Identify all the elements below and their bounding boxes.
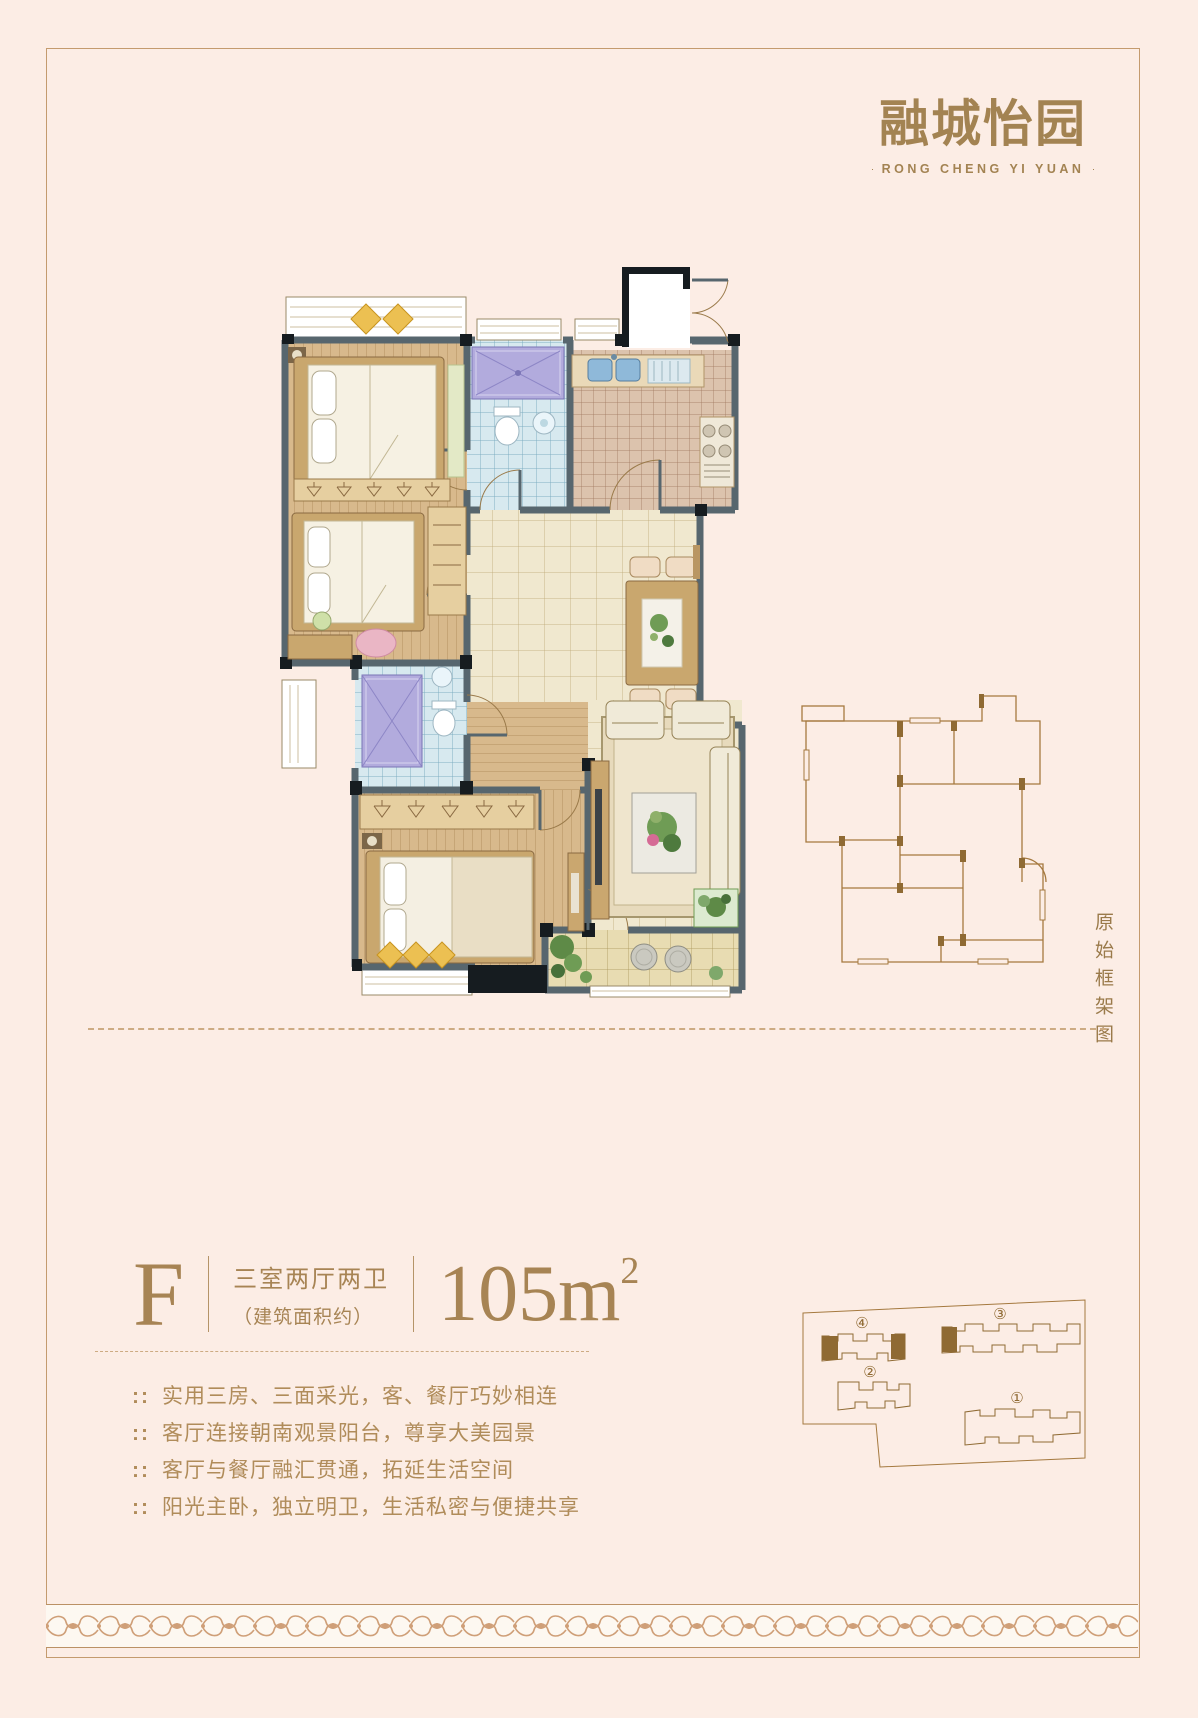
bullet-icon: :: [132, 1459, 150, 1483]
frame-diagram-caption: 原始框架图 [1089, 912, 1116, 1052]
sub-divider [95, 1351, 589, 1352]
logo-title: 融城怡园 [872, 94, 1094, 154]
stove-icon [700, 417, 734, 487]
closet-1-icon [294, 479, 450, 501]
building-3-outline [942, 1324, 1080, 1353]
logo-subtitle: RONG CHENG YI YUAN [882, 162, 1085, 176]
bed-1-icon [288, 347, 464, 487]
dresser-icon [568, 853, 584, 931]
balcony-stools-icon [631, 944, 691, 972]
planter-box-icon [694, 889, 738, 927]
highlighted-unit-block [891, 1334, 905, 1359]
feature-text: 阳光主卧，独立明卫，生活私密与便捷共享 [162, 1491, 580, 1521]
sideboard-icon [693, 545, 700, 579]
building-3-label: ③ [993, 1305, 1006, 1323]
list-item: :: 阳光主卧，独立明卫，生活私密与便捷共享 [132, 1491, 580, 1528]
building-2-outline [838, 1382, 910, 1410]
frame-outline-diagram [798, 690, 1068, 982]
wardrobe-master-icon [360, 795, 534, 829]
logo-subtitle-row: RONG CHENG YI YUAN [872, 162, 1094, 176]
list-item: :: 实用三房、三面采光，客、餐厅巧妙相连 [132, 1380, 580, 1417]
separator-line [413, 1256, 414, 1332]
wardrobe-2-icon [428, 507, 466, 615]
list-item: :: 客厅与餐厅融汇贯通，拓延生活空间 [132, 1454, 580, 1491]
unit-layout: 三室两厅两卫 （建筑面积约） [233, 1259, 389, 1329]
toilet-2-icon [432, 701, 456, 736]
logo-dash-left [872, 169, 873, 170]
kitchen-counter-icon [572, 354, 704, 387]
brochure-page: 融城怡园 RONG CHENG YI YUAN [0, 0, 1198, 1718]
building-1-label: ① [1010, 1389, 1023, 1407]
feature-text: 客厅连接朝南观景阳台，尊享大美园景 [162, 1417, 536, 1447]
list-item: :: 客厅连接朝南观景阳台，尊享大美园景 [132, 1417, 580, 1454]
shower-1-icon [472, 347, 564, 399]
ornament-pattern [46, 1605, 1138, 1647]
bullet-icon: :: [132, 1422, 150, 1446]
logo-dash-right [1093, 169, 1094, 170]
feature-list: :: 实用三房、三面采光，客、餐厅巧妙相连 :: 客厅连接朝南观景阳台，尊享大美… [132, 1380, 580, 1528]
ornament-border [46, 1604, 1138, 1648]
dining-table-icon [626, 557, 698, 709]
feature-text: 客厅与餐厅融汇贯通，拓延生活空间 [162, 1454, 514, 1484]
floor-plan [270, 255, 770, 1000]
building-2-label: ② [863, 1363, 876, 1381]
unit-area: 105m2 [438, 1254, 639, 1334]
tv-cabinet-icon [591, 761, 609, 919]
shower-2-icon [362, 675, 422, 767]
coffee-table-icon [632, 793, 696, 873]
unit-info: F 三室两厅两卫 （建筑面积约） 105m2 [133, 1248, 639, 1340]
site-plan: ④ ③ ② ① [745, 1290, 1095, 1510]
separator-line [208, 1256, 209, 1332]
building-1-outline [965, 1409, 1080, 1445]
highlighted-unit-block [822, 1336, 838, 1360]
unit-area-label: （建筑面积约） [233, 1302, 389, 1329]
bullet-icon: :: [132, 1496, 150, 1520]
bullet-icon: :: [132, 1385, 150, 1409]
unit-layout-text: 三室两厅两卫 [233, 1259, 389, 1294]
project-logo: 融城怡园 RONG CHENG YI YUAN [872, 94, 1094, 176]
unit-area-sup: 2 [620, 1252, 639, 1290]
sink-2-icon [432, 667, 452, 687]
section-divider [88, 1028, 1106, 1030]
bed-2-icon [292, 513, 424, 631]
highlighted-unit-block [942, 1327, 957, 1352]
toilet-1-icon [494, 407, 520, 445]
building-4-label: ④ [855, 1314, 868, 1332]
bay-pillows-master [377, 942, 455, 968]
unit-area-value: 105m [438, 1254, 620, 1334]
sink-1-icon [533, 412, 555, 434]
floor-plan-drawing [270, 255, 770, 1000]
feature-text: 实用三房、三面采光，客、餐厅巧妙相连 [162, 1380, 558, 1410]
unit-letter: F [133, 1248, 184, 1340]
